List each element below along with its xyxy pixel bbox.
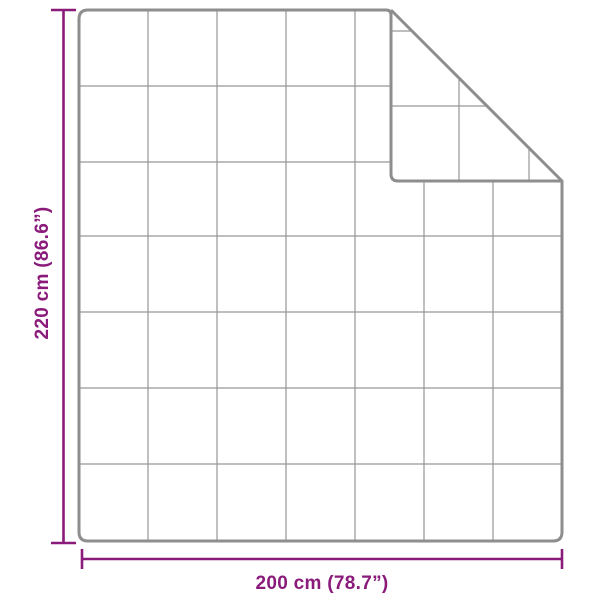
height-dimension-label: 220 cm (86.6”) (32, 206, 53, 339)
blanket-diagram-canvas: 220 cm (86.6”) 200 cm (78.7”) (0, 0, 600, 600)
product-dimension-diagram: 220 cm (86.6”) 200 cm (78.7”) (0, 0, 600, 600)
folded-corner-grid-lines (391, 31, 529, 180)
width-dimension-line (82, 549, 562, 569)
width-dimension-label: 200 cm (78.7”) (255, 573, 388, 594)
fold-diagonal-edge (392, 11, 561, 180)
height-dimension-line (51, 10, 76, 543)
blanket-body (79, 10, 562, 541)
